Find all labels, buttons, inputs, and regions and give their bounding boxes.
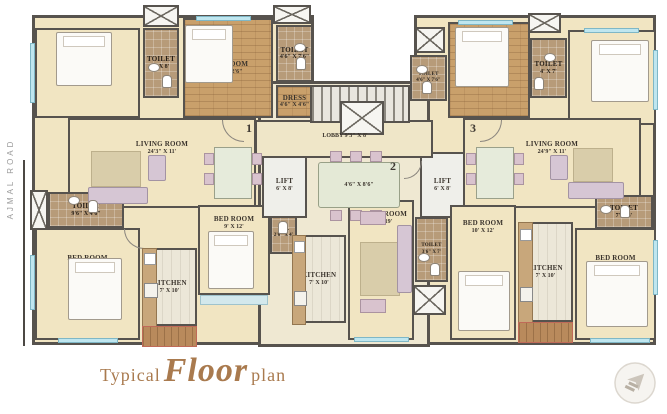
kitchen-sink [144,253,156,265]
bed-furniture [591,40,649,102]
duct-shaft-icon [413,285,446,315]
bed-furniture [208,231,254,289]
window [584,28,639,33]
unit-marker-3: 3 [470,121,476,136]
lobby-table: 4'6" X 8'6" [318,162,400,208]
armchair-furniture [148,155,166,181]
lift-shaft-icon [340,101,384,135]
washbasin-icon [68,196,80,205]
bed-furniture [68,258,122,320]
dining-chair [514,173,524,185]
floor-plan-page: AJMAL ROAD BED ROOM13'6" X 10'6"TOILET4'… [0,0,667,414]
plot-boundary-line [23,160,25,346]
sofa-furniture [568,182,624,199]
window-ledge [200,295,268,305]
duct-shaft-icon [528,13,561,33]
washbasin-icon [544,53,556,62]
window [58,338,118,343]
stove-icon [144,283,158,298]
toilet-seat-icon [620,205,630,218]
rug-furniture [360,242,400,296]
unit-marker-1: 1 [246,121,252,136]
washbasin-icon [294,43,306,52]
washbasin-icon [600,205,612,214]
plan-title: Typical Floor plan [100,352,286,390]
dining-chair [514,153,524,165]
lobby-table-dims: 4'6" X 8'6" [344,182,373,188]
chair-furniture [360,211,386,225]
chair-furniture [360,299,386,313]
bed-furniture [586,261,648,327]
toilet-seat-icon [534,77,544,90]
lobby-dims: 9'3" X 8' [345,133,368,139]
armchair-furniture [550,155,568,180]
window [196,16,251,21]
balcony [142,326,197,347]
lobby-label: LOBBY 9'3" X 8' [280,133,410,139]
duct-shaft-icon [415,27,445,53]
road-label: AJMAL ROAD [6,119,20,239]
toilet-seat-icon [162,75,172,88]
toilet-seat-icon [278,221,288,234]
chair-furniture [350,151,362,162]
duct-shaft-icon [30,190,48,230]
door-arc [404,161,422,179]
washbasin-icon [416,65,428,74]
unit-marker-2: 2 [390,159,396,174]
decor-layer: LOBBY 9'3" X 8' 4'6" X 8'6" 1 2 3 [28,5,660,347]
duct-shaft-icon [273,5,311,24]
balcony [518,322,573,343]
toilet-seat-icon [88,200,98,213]
rug-furniture [91,151,141,187]
dining-chair [204,153,214,165]
window [30,43,35,103]
sofa-furniture [397,225,412,293]
title-prefix: Typical [100,365,161,386]
door-arc [480,120,502,142]
door-arc [222,120,244,142]
bed-furniture [185,25,233,83]
stove-icon [520,287,533,302]
window [30,255,35,310]
stove-icon [294,291,307,306]
toilet-seat-icon [296,57,306,70]
toilet-seat-icon [430,263,440,276]
bed-furniture [458,271,510,331]
dining-table-furniture [476,147,514,199]
dining-chair [252,173,262,185]
toilet-seat-icon [422,81,432,94]
window [354,337,409,342]
kitchen-sink [294,241,305,253]
dining-chair [252,153,262,165]
chair-furniture [330,210,342,221]
window [458,20,513,25]
window [653,50,658,110]
compass-north-icon [612,360,658,411]
dining-table-furniture [214,147,252,199]
window [590,338,650,343]
dining-chair [466,173,476,185]
lobby-name: LOBBY [322,133,343,139]
dining-chair [204,173,214,185]
dining-chair [466,153,476,165]
bed-furniture [56,32,112,86]
washbasin-icon [418,253,430,262]
chair-furniture [370,151,382,162]
title-script: Floor [164,352,248,390]
floor-plan: BED ROOM13'6" X 10'6"TOILET4' X 8'BED RO… [28,5,660,347]
title-suffix: plan [251,365,286,386]
washbasin-icon [148,63,160,72]
chair-furniture [330,151,342,162]
rug-furniture [573,148,613,182]
door-arc [124,229,144,249]
bed-furniture [455,27,509,87]
kitchen-sink [520,229,532,241]
duct-shaft-icon [143,5,179,27]
window [653,240,658,295]
